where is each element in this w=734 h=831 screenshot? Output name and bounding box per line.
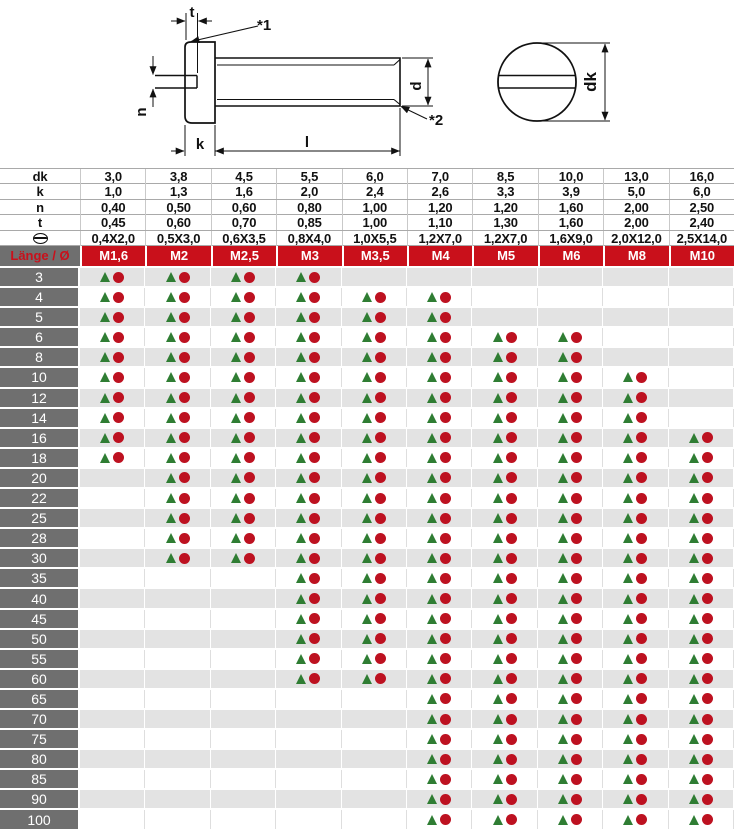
red-circle-marker <box>636 553 647 564</box>
marker-pair <box>166 392 190 403</box>
availability-cell <box>145 710 210 728</box>
red-circle-marker <box>244 432 255 443</box>
green-triangle-marker <box>362 352 372 362</box>
red-circle-marker <box>506 553 517 564</box>
dims-value: 7,0 <box>407 169 472 184</box>
red-circle-marker <box>571 653 582 664</box>
marker-pair <box>689 673 713 684</box>
red-circle-marker <box>506 633 517 644</box>
length-label: 35 <box>0 569 80 587</box>
green-triangle-marker <box>427 332 437 342</box>
red-circle-marker <box>571 794 582 805</box>
availability-cell <box>80 489 145 507</box>
availability-cell <box>342 348 407 366</box>
red-circle-marker <box>440 292 451 303</box>
availability-cell <box>276 509 341 527</box>
availability-cell <box>407 489 472 507</box>
green-triangle-marker <box>362 292 372 302</box>
marker-pair <box>689 714 713 725</box>
marker-pair <box>100 292 124 303</box>
availability-cell <box>669 569 734 587</box>
red-circle-marker <box>375 332 386 343</box>
marker-pair <box>689 573 713 584</box>
green-triangle-marker <box>558 553 568 563</box>
availability-cell <box>80 389 145 407</box>
marker-pair <box>558 513 582 524</box>
availability-cell <box>603 529 668 547</box>
red-circle-marker <box>309 653 320 664</box>
green-triangle-marker <box>296 513 306 523</box>
availability-cell <box>603 268 668 286</box>
availability-cell <box>276 650 341 668</box>
green-triangle-marker <box>493 453 503 463</box>
red-circle-marker <box>506 734 517 745</box>
dim-label-l: l <box>305 134 309 151</box>
green-triangle-marker <box>296 614 306 624</box>
marker-pair <box>100 412 124 423</box>
availability-cell <box>80 730 145 748</box>
red-circle-marker <box>571 573 582 584</box>
availability-cell <box>80 770 145 788</box>
dims-value: 2,4 <box>342 184 407 199</box>
availability-cell <box>538 489 603 507</box>
size-column-header: M1,6 <box>80 246 145 266</box>
availability-cell <box>407 449 472 467</box>
marker-pair <box>362 432 386 443</box>
availability-cell <box>538 670 603 688</box>
availability-cell <box>669 610 734 628</box>
red-circle-marker <box>571 452 582 463</box>
marker-pair <box>558 653 582 664</box>
availability-cell <box>669 288 734 306</box>
red-circle-marker <box>179 392 190 403</box>
availability-cell <box>145 650 210 668</box>
green-triangle-marker <box>558 332 568 342</box>
green-triangle-marker <box>166 372 176 382</box>
red-circle-marker <box>571 392 582 403</box>
red-circle-marker <box>636 432 647 443</box>
table-row: 10 <box>0 368 734 388</box>
availability-cell <box>472 770 537 788</box>
availability-cell <box>669 469 734 487</box>
availability-cell <box>211 589 276 607</box>
red-circle-marker <box>506 673 517 684</box>
green-triangle-marker <box>100 413 110 423</box>
red-circle-marker <box>113 272 124 283</box>
red-circle-marker <box>636 714 647 725</box>
screw-side-view <box>155 42 400 123</box>
green-triangle-marker <box>100 272 110 282</box>
marker-pair <box>231 332 255 343</box>
red-circle-marker <box>636 794 647 805</box>
table-row: 90 <box>0 790 734 810</box>
availability-cell <box>342 610 407 628</box>
marker-pair <box>166 272 190 283</box>
availability-cell <box>342 328 407 346</box>
availability-cell <box>407 328 472 346</box>
marker-pair <box>427 593 451 604</box>
marker-pair <box>427 533 451 544</box>
marker-pair <box>296 653 320 664</box>
red-circle-marker <box>636 814 647 825</box>
red-circle-marker <box>440 653 451 664</box>
marker-pair <box>427 352 451 363</box>
marker-pair <box>362 553 386 564</box>
red-circle-marker <box>309 513 320 524</box>
availability-cell <box>603 790 668 808</box>
availability-cell <box>472 630 537 648</box>
availability-cell <box>276 288 341 306</box>
marker-pair <box>166 533 190 544</box>
red-circle-marker <box>440 633 451 644</box>
red-circle-marker <box>702 814 713 825</box>
table-row: 12 <box>0 389 734 409</box>
red-circle-marker <box>375 593 386 604</box>
marker-pair <box>427 573 451 584</box>
red-circle-marker <box>636 573 647 584</box>
dims-value: 3,8 <box>145 169 210 184</box>
marker-pair <box>100 352 124 363</box>
dims-value: 5,5 <box>276 169 341 184</box>
red-circle-marker <box>309 372 320 383</box>
availability-cell <box>669 549 734 567</box>
availability-cell <box>145 288 210 306</box>
red-circle-marker <box>244 332 255 343</box>
green-triangle-marker <box>493 634 503 644</box>
dim-label-n: n <box>133 107 150 116</box>
red-circle-marker <box>375 472 386 483</box>
green-triangle-marker <box>296 473 306 483</box>
green-triangle-marker <box>623 533 633 543</box>
availability-cell <box>145 750 210 768</box>
availability-cell <box>669 449 734 467</box>
green-triangle-marker <box>623 815 633 825</box>
marker-pair <box>296 573 320 584</box>
red-circle-marker <box>440 493 451 504</box>
availability-cell <box>538 549 603 567</box>
green-triangle-marker <box>558 533 568 543</box>
red-circle-marker <box>179 312 190 323</box>
red-circle-marker <box>702 714 713 725</box>
red-circle-marker <box>440 693 451 704</box>
red-circle-marker <box>571 553 582 564</box>
green-triangle-marker <box>362 654 372 664</box>
availability-cell <box>407 368 472 386</box>
red-circle-marker <box>309 573 320 584</box>
size-column-header: M8 <box>603 246 668 266</box>
marker-pair <box>231 392 255 403</box>
dims-value: 2,00 <box>603 200 668 215</box>
red-circle-marker <box>113 412 124 423</box>
availability-cell <box>603 389 668 407</box>
availability-cell <box>669 710 734 728</box>
dims-row: dk3,03,84,55,56,07,08,510,013,016,0 <box>0 169 734 184</box>
availability-cell <box>80 650 145 668</box>
table-row: 25 <box>0 509 734 529</box>
green-triangle-marker <box>296 533 306 543</box>
availability-cell <box>211 308 276 326</box>
red-circle-marker <box>702 533 713 544</box>
availability-cell <box>472 589 537 607</box>
marker-pair <box>558 493 582 504</box>
availability-cell <box>472 810 537 828</box>
availability-cell <box>669 670 734 688</box>
marker-pair <box>493 754 517 765</box>
green-triangle-marker <box>427 292 437 302</box>
marker-pair <box>689 734 713 745</box>
green-triangle-marker <box>558 372 568 382</box>
red-circle-marker <box>375 533 386 544</box>
marker-pair <box>231 312 255 323</box>
availability-cell <box>603 730 668 748</box>
length-label: 10 <box>0 368 80 386</box>
green-triangle-marker <box>427 513 437 523</box>
length-label: 25 <box>0 509 80 527</box>
green-triangle-marker <box>296 573 306 583</box>
red-circle-marker <box>113 332 124 343</box>
availability-cell <box>276 308 341 326</box>
table-row: 80 <box>0 750 734 770</box>
red-circle-marker <box>309 493 320 504</box>
availability-cell <box>603 630 668 648</box>
red-circle-marker <box>244 352 255 363</box>
red-circle-marker <box>636 452 647 463</box>
red-circle-marker <box>309 432 320 443</box>
marker-pair <box>296 613 320 624</box>
marker-pair <box>623 693 647 704</box>
table-row: 28 <box>0 529 734 549</box>
length-label: 4 <box>0 288 80 306</box>
availability-cell <box>211 348 276 366</box>
red-circle-marker <box>113 432 124 443</box>
marker-pair <box>689 472 713 483</box>
red-circle-marker <box>309 352 320 363</box>
dims-value: 1,3 <box>145 184 210 199</box>
green-triangle-marker <box>689 573 699 583</box>
red-circle-marker <box>440 613 451 624</box>
marker-pair <box>493 814 517 825</box>
availability-cell <box>407 770 472 788</box>
green-triangle-marker <box>493 433 503 443</box>
green-triangle-marker <box>427 312 437 322</box>
availability-cell <box>669 368 734 386</box>
green-triangle-marker <box>100 372 110 382</box>
dims-value: 1,20 <box>472 200 537 215</box>
dims-row: 0,4X2,00,5X3,00,6X3,50,8X4,01,0X5,51,2X7… <box>0 231 734 246</box>
red-circle-marker <box>571 593 582 604</box>
green-triangle-marker <box>362 332 372 342</box>
red-circle-marker <box>702 653 713 664</box>
red-circle-marker <box>571 734 582 745</box>
green-triangle-marker <box>231 453 241 463</box>
dimension-lines <box>153 13 433 156</box>
red-circle-marker <box>440 794 451 805</box>
green-triangle-marker <box>231 513 241 523</box>
dims-value: 0,85 <box>276 215 341 230</box>
green-triangle-marker <box>362 433 372 443</box>
marker-pair <box>558 734 582 745</box>
availability-cell <box>407 610 472 628</box>
technical-drawing-svg: t *1 n d *2 k l dk <box>0 0 734 168</box>
availability-cell <box>276 328 341 346</box>
marker-pair <box>493 774 517 785</box>
availability-cell <box>342 670 407 688</box>
availability-cell <box>211 509 276 527</box>
green-triangle-marker <box>166 332 176 342</box>
availability-cell <box>538 288 603 306</box>
marker-pair <box>493 372 517 383</box>
marker-pair <box>427 553 451 564</box>
marker-pair <box>100 332 124 343</box>
length-label: 30 <box>0 549 80 567</box>
length-label: 60 <box>0 670 80 688</box>
availability-cell <box>407 589 472 607</box>
red-circle-marker <box>571 754 582 765</box>
availability-cell <box>342 730 407 748</box>
availability-cell <box>80 288 145 306</box>
green-triangle-marker <box>427 774 437 784</box>
availability-cell <box>342 409 407 427</box>
red-circle-marker <box>440 412 451 423</box>
green-triangle-marker <box>623 714 633 724</box>
green-triangle-marker <box>296 553 306 563</box>
marker-pair <box>427 292 451 303</box>
red-circle-marker <box>309 392 320 403</box>
marker-pair <box>296 633 320 644</box>
dims-value: 0,70 <box>211 215 276 230</box>
green-triangle-marker <box>558 614 568 624</box>
red-circle-marker <box>375 372 386 383</box>
red-circle-marker <box>375 312 386 323</box>
marker-pair <box>296 452 320 463</box>
green-triangle-marker <box>689 674 699 684</box>
green-triangle-marker <box>623 694 633 704</box>
availability-cell <box>276 670 341 688</box>
marker-pair <box>493 673 517 684</box>
marker-pair <box>558 714 582 725</box>
marker-pair <box>296 553 320 564</box>
dims-row-label <box>0 231 80 246</box>
marker-pair <box>166 452 190 463</box>
availability-cell <box>145 368 210 386</box>
availability-cell <box>407 549 472 567</box>
red-circle-marker <box>506 412 517 423</box>
availability-cell <box>603 409 668 427</box>
red-circle-marker <box>636 493 647 504</box>
availability-cell <box>669 790 734 808</box>
table-row: 50 <box>0 630 734 650</box>
dims-value: 1,00 <box>342 215 407 230</box>
availability-cell <box>603 610 668 628</box>
marker-pair <box>689 493 713 504</box>
availability-cell <box>342 268 407 286</box>
availability-cell <box>276 710 341 728</box>
green-triangle-marker <box>493 513 503 523</box>
green-triangle-marker <box>362 312 372 322</box>
length-label: 65 <box>0 690 80 708</box>
red-circle-marker <box>375 452 386 463</box>
availability-cell <box>145 569 210 587</box>
marker-pair <box>296 432 320 443</box>
availability-cell <box>211 730 276 748</box>
dims-row: t0,450,600,700,851,001,101,301,602,002,4… <box>0 215 734 230</box>
green-triangle-marker <box>623 433 633 443</box>
green-triangle-marker <box>689 553 699 563</box>
dim-label-dk: dk <box>581 72 600 92</box>
green-triangle-marker <box>166 272 176 282</box>
dims-value: 3,9 <box>538 184 603 199</box>
green-triangle-marker <box>166 352 176 362</box>
availability-cell <box>80 509 145 527</box>
marker-pair <box>427 794 451 805</box>
availability-cell <box>80 549 145 567</box>
marker-pair <box>558 573 582 584</box>
green-triangle-marker <box>362 553 372 563</box>
availability-cell <box>211 328 276 346</box>
marker-pair <box>623 754 647 765</box>
green-triangle-marker <box>100 453 110 463</box>
page: t *1 n d *2 k l dk dk3,03,84,55,56,07,08… <box>0 0 734 831</box>
green-triangle-marker <box>689 513 699 523</box>
red-circle-marker <box>571 513 582 524</box>
dims-value: 13,0 <box>603 169 668 184</box>
marker-pair <box>100 312 124 323</box>
availability-cell <box>145 429 210 447</box>
marker-pair <box>427 734 451 745</box>
red-circle-marker <box>113 392 124 403</box>
red-circle-marker <box>244 513 255 524</box>
marker-pair <box>493 392 517 403</box>
red-circle-marker <box>375 292 386 303</box>
green-triangle-marker <box>689 594 699 604</box>
availability-cell <box>669 409 734 427</box>
marker-pair <box>623 472 647 483</box>
red-circle-marker <box>636 693 647 704</box>
marker-pair <box>558 332 582 343</box>
marker-pair <box>296 513 320 524</box>
slot-drive-icon <box>33 233 48 244</box>
marker-pair <box>558 593 582 604</box>
availability-cell <box>342 489 407 507</box>
table-row: 30 <box>0 549 734 569</box>
availability-cell <box>211 750 276 768</box>
red-circle-marker <box>702 593 713 604</box>
availability-cell <box>276 730 341 748</box>
dims-value: 1,00 <box>342 200 407 215</box>
table-row: 60 <box>0 670 734 690</box>
marker-pair <box>558 794 582 805</box>
availability-cell <box>603 348 668 366</box>
marker-pair <box>689 553 713 564</box>
length-label: 28 <box>0 529 80 547</box>
marker-pair <box>166 513 190 524</box>
green-triangle-marker <box>558 654 568 664</box>
green-triangle-marker <box>231 272 241 282</box>
green-triangle-marker <box>623 754 633 764</box>
green-triangle-marker <box>558 694 568 704</box>
marker-pair <box>493 593 517 604</box>
red-circle-marker <box>702 452 713 463</box>
length-label: 100 <box>0 810 80 828</box>
green-triangle-marker <box>166 413 176 423</box>
availability-cell <box>211 569 276 587</box>
green-triangle-marker <box>362 453 372 463</box>
availability-cell <box>145 469 210 487</box>
availability-cell <box>669 268 734 286</box>
marker-pair <box>362 673 386 684</box>
red-circle-marker <box>571 774 582 785</box>
marker-pair <box>296 493 320 504</box>
